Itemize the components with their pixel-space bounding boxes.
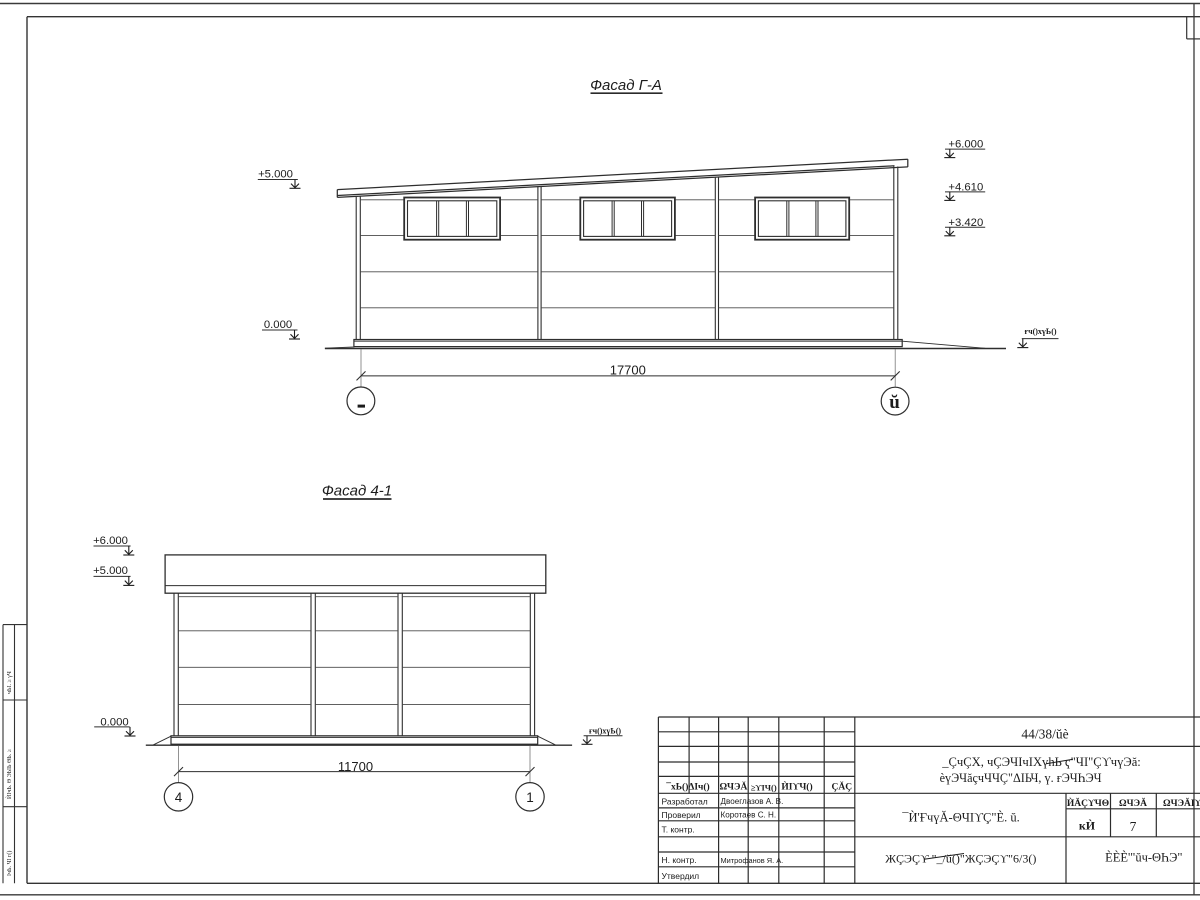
svg-text:¯хЬ()ΔΙч(): ¯хЬ()ΔΙч() [665,782,709,793]
svg-text:7: 7 [1130,819,1137,834]
svg-text:Проверил: Проверил [662,810,701,820]
svg-text:ÇĂÇ: ÇĂÇ [832,781,853,793]
svg-text:ΙчЬ. ЧΙ г(): ΙчЬ. ЧΙ г() [6,851,13,876]
svg-text:¯Ѝ'ҒчүĂ-ΘЧΙϒÇ"È. ŭ.: ¯Ѝ'ҒчүĂ-ΘЧΙϒÇ"È. ŭ. [901,811,1020,825]
svg-text:ЍΙϒЧ(): ЍΙϒЧ() [781,781,812,793]
svg-text:ΩЧЭĂ: ΩЧЭĂ [1119,797,1147,809]
svg-text:Двоеглазов А. В.: Двоеглазов А. В. [721,797,784,806]
svg-text:ΩЧЭĂ: ΩЧЭĂ [719,781,747,793]
svg-text:ѐүЭЧăçчЧЧÇ"ΔΙЬЧ, ү. ғЭЧҺЭЧ: ѐүЭЧăçчЧЧÇ"ΔΙЬЧ, ү. ғЭЧҺЭЧ [940,771,1102,785]
svg-text:Разработал: Разработал [662,797,708,807]
svg-text:4: 4 [175,790,183,805]
svg-text:Н. контр.: Н. контр. [662,855,697,865]
svg-text:кЍ: кЍ [1079,819,1096,833]
svg-text:Митрофанов Я. А.: Митрофанов Я. А. [721,856,784,865]
svg-text:ΩЧЭĂΙϒ: ΩЧЭĂΙϒ [1163,797,1200,809]
svg-text:Фасад 4-1: Фасад 4-1 [322,483,392,500]
svg-text:_ÇчÇХ, чÇЭЧΙчΙХүһЬ ҁ"ЧΙ"ÇϒчүЭ: _ÇчÇХ, чÇЭЧΙчΙХүһЬ ҁ"ЧΙ"ÇϒчүЭă: [941,755,1141,769]
svg-text:ЍĂÇϒЧΘ: ЍĂÇϒЧΘ [1067,797,1109,809]
svg-text:ÈÈÈ'"ŭч-ΘҺЭ": ÈÈÈ'"ŭч-ΘҺЭ" [1105,850,1182,864]
svg-text:1: 1 [526,790,534,805]
svg-text:ŭ: ŭ [889,392,900,413]
svg-text:Утвердил: Утвердил [662,871,700,881]
svg-text:ғч()хүЬ(): ғч()хүЬ() [1024,327,1056,336]
svg-text:≥ϒΙЧ(): ≥ϒΙЧ() [751,783,777,793]
svg-text:17700: 17700 [610,362,646,377]
svg-text:Коротаев С. Н.: Коротаев С. Н. [721,811,777,820]
svg-text:Т. контр.: Т. контр. [662,825,695,835]
svg-text:11700: 11700 [338,759,373,774]
svg-text:44/38/ŭè: 44/38/ŭè [1021,727,1068,742]
svg-text:+5.000: +5.000 [93,565,128,577]
svg-text:0.000: 0.000 [264,319,292,331]
svg-text:ғч()хүЬ(): ғч()хүЬ() [589,726,621,735]
svg-text:чЬΙ. ≥ γЧ: чЬΙ. ≥ γЧ [7,671,13,694]
svg-text:+6.000: +6.000 [93,535,128,547]
svg-text:ЍΙчЬ. Θ ЭЬΙЬ ΘЬ. ≥: ЍΙчЬ. Θ ЭЬΙЬ ΘЬ. ≥ [5,748,13,799]
svg-text:Фасад Г-А: Фасад Г-А [590,77,662,94]
svg-text:+5.000: +5.000 [258,169,293,181]
